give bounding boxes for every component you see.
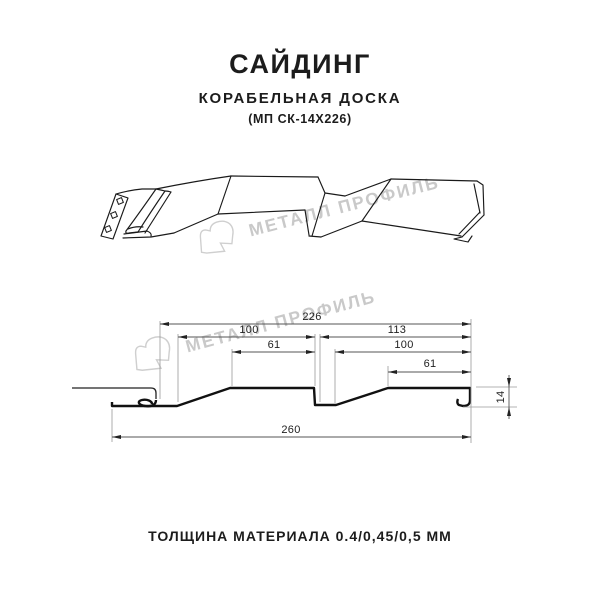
product-diagram-page: САЙДИНГ КОРАБЕЛЬНАЯ ДОСКА (МП СК-14Х226)…	[0, 0, 600, 600]
dim-label-14: 14	[495, 391, 507, 404]
thickness-note: ТОЛЩИНА МАТЕРИАЛА 0.4/0,45/0,5 ММ	[0, 528, 600, 544]
dim-label-260: 260	[281, 424, 300, 436]
page-subtitle: КОРАБЕЛЬНАЯ ДОСКА	[0, 90, 600, 107]
dim-label-226: 226	[302, 311, 321, 323]
dim-label-113: 113	[388, 324, 406, 336]
product-model: (МП СК-14Х226)	[0, 112, 600, 126]
dim-label-61-left: 61	[268, 339, 281, 351]
dimension-arrows	[112, 322, 511, 439]
dim-label-100-right: 100	[394, 339, 413, 351]
profile-3d-sketch	[101, 176, 484, 242]
dim-label-61-right: 61	[424, 358, 437, 370]
cross-section-profile	[72, 388, 470, 406]
page-title: САЙДИНГ	[0, 49, 600, 80]
header: САЙДИНГ КОРАБЕЛЬНАЯ ДОСКА (МП СК-14Х226)	[0, 49, 600, 126]
dimension-lines	[112, 324, 509, 437]
dim-label-100-left: 100	[239, 324, 258, 336]
extension-lines	[112, 319, 517, 443]
